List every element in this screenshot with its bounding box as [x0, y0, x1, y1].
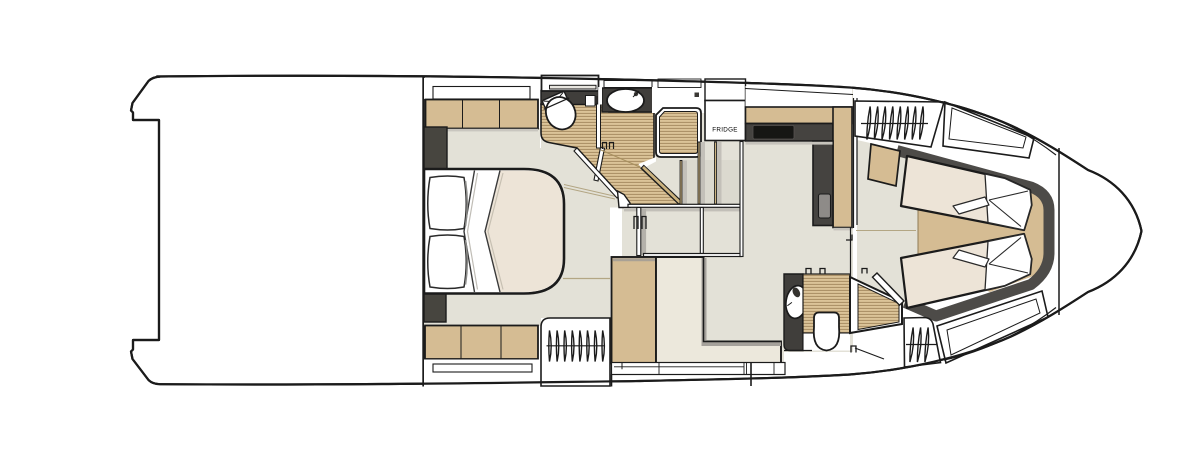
svg-text:FRIDGE: FRIDGE [712, 127, 738, 134]
